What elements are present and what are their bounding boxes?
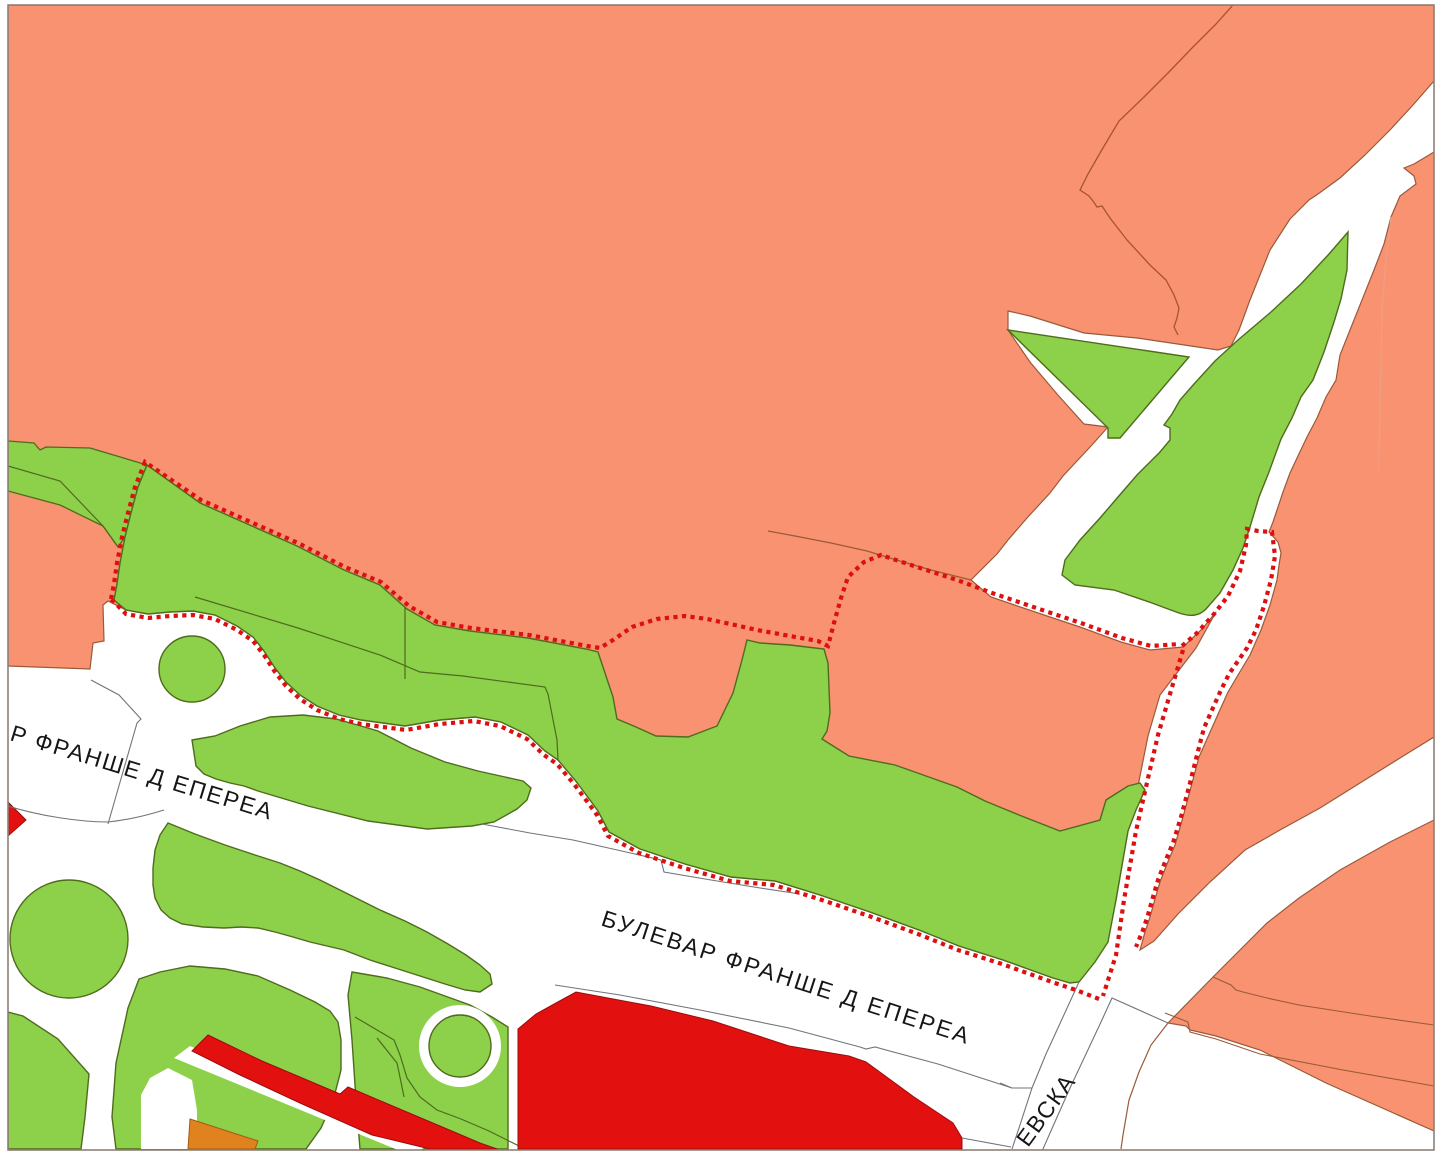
svg-text:ЕВСКА: ЕВСКА <box>1011 1069 1081 1151</box>
